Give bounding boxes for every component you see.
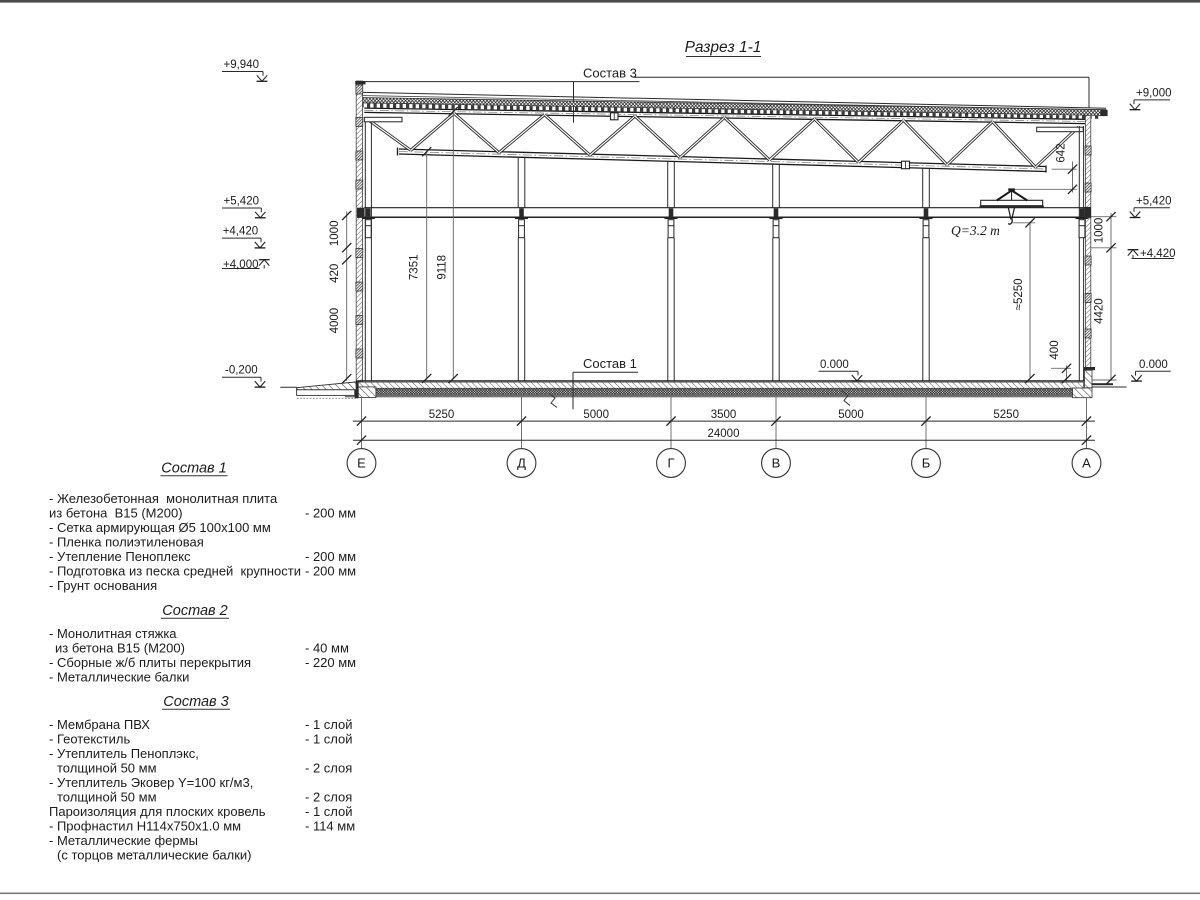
svg-text:5000: 5000: [583, 409, 609, 421]
svg-text:Состав 1: Состав 1: [161, 461, 226, 477]
svg-text:- 220 мм: - 220 мм: [305, 655, 356, 670]
svg-text:Г: Г: [667, 456, 674, 471]
svg-text:- Сборные ж/б плиты перекрытия: - Сборные ж/б плиты перекрытия: [49, 655, 251, 670]
svg-text:Б: Б: [922, 456, 931, 471]
svg-text:- Утеплитель Эковер Y=100 кг/м: - Утеплитель Эковер Y=100 кг/м3,: [49, 775, 253, 790]
svg-text:- Железобетонная монолитная п: - Железобетонная монолитная плита: [49, 491, 278, 506]
svg-text:+9,000: +9,000: [1136, 88, 1172, 100]
svg-text:Состав 1: Состав 1: [583, 356, 637, 371]
svg-text:- Подготовка из песка средней: - Подготовка из песка средней крупности: [49, 564, 301, 579]
svg-text:5250: 5250: [993, 409, 1019, 421]
svg-text:+4,000: +4,000: [223, 259, 259, 271]
svg-text:- Металлические фермы: - Металлические фермы: [49, 833, 198, 848]
svg-text:толщиной 50 мм: толщиной 50 мм: [57, 761, 157, 776]
svg-text:- Пленка полиэтиленовая: - Пленка полиэтиленовая: [49, 535, 204, 550]
svg-text:+9,940: +9,940: [224, 59, 260, 71]
svg-text:Состав 2: Состав 2: [162, 603, 227, 619]
svg-text:- 2 слоя: - 2 слоя: [305, 790, 352, 805]
svg-text:1000: 1000: [1093, 218, 1105, 244]
svg-text:- Мембрана ПВХ: - Мембрана ПВХ: [49, 717, 150, 732]
svg-text:1000: 1000: [329, 221, 341, 247]
svg-text:Состав 3: Состав 3: [583, 66, 637, 81]
svg-text:≈5250: ≈5250: [1013, 278, 1025, 310]
svg-text:7351: 7351: [409, 255, 421, 281]
svg-text:- 1 слой: - 1 слой: [305, 804, 353, 819]
svg-text:- Утепление Пеноплекс: - Утепление Пеноплекс: [49, 549, 191, 564]
svg-text:- Профнастил Н114х750х1.0 мм: - Профнастил Н114х750х1.0 мм: [49, 819, 241, 834]
svg-text:В: В: [772, 456, 781, 471]
svg-text:420: 420: [329, 264, 341, 283]
svg-text:- 200 мм: - 200 мм: [305, 549, 356, 564]
svg-text:- 1 слой: - 1 слой: [305, 717, 353, 732]
svg-text:толщиной 50 мм: толщиной 50 мм: [57, 790, 157, 805]
svg-text:3500: 3500: [711, 409, 737, 421]
svg-text:0.000: 0.000: [820, 359, 849, 371]
svg-text:400: 400: [1049, 340, 1061, 359]
svg-text:- Сетка армирующая Ø5 100х100: - Сетка армирующая Ø5 100х100 мм: [49, 520, 271, 535]
svg-text:0.000: 0.000: [1139, 359, 1168, 371]
svg-text:4420: 4420: [1093, 298, 1105, 324]
svg-text:5250: 5250: [429, 409, 455, 421]
svg-text:- 1 слой: - 1 слой: [305, 732, 353, 747]
svg-text:4000: 4000: [329, 308, 341, 334]
svg-text:-0,200: -0,200: [225, 365, 258, 377]
svg-text:- Геотекстиль: - Геотекстиль: [49, 732, 130, 747]
svg-text:из бетона В15 (М200): из бетона В15 (М200): [55, 641, 185, 656]
svg-text:5000: 5000: [838, 409, 864, 421]
svg-text:Пароизоляция для плоских крове: Пароизоляция для плоских кровель: [49, 804, 266, 819]
svg-text:Д: Д: [517, 456, 526, 471]
svg-text:+5,420: +5,420: [224, 195, 260, 207]
svg-text:- Монолитная стяжка: - Монолитная стяжка: [49, 626, 177, 641]
svg-text:+4,420: +4,420: [223, 225, 259, 237]
svg-text:24000: 24000: [708, 428, 740, 440]
svg-text:(с торцов металлические балки): (с торцов металлические балки): [57, 848, 252, 863]
svg-text:- Металлические балки: - Металлические балки: [49, 670, 189, 685]
svg-text:- Грунт основания: - Грунт основания: [49, 578, 157, 593]
svg-text:- 2 слоя: - 2 слоя: [305, 761, 352, 776]
svg-text:Состав 3: Состав 3: [163, 694, 228, 710]
svg-text:- Утеплитель Пеноплэкс,: - Утеплитель Пеноплэкс,: [49, 746, 199, 761]
svg-text:- 200 мм: - 200 мм: [305, 564, 356, 579]
svg-text:- 114 мм: - 114 мм: [305, 819, 355, 834]
svg-text:А: А: [1082, 456, 1091, 471]
svg-text:Q=3.2 m: Q=3.2 m: [951, 223, 1000, 238]
svg-text:+5,420: +5,420: [1136, 196, 1172, 208]
svg-text:- 40 мм: - 40 мм: [305, 641, 349, 656]
svg-text:9118: 9118: [436, 255, 448, 280]
svg-text:из бетона В15 (М200): из бетона В15 (М200): [49, 506, 183, 521]
svg-text:Разрез 1-1: Разрез 1-1: [685, 39, 762, 56]
svg-text:- 200 мм: - 200 мм: [305, 506, 356, 521]
svg-text:642: 642: [1056, 143, 1068, 162]
svg-text:Е: Е: [357, 456, 366, 471]
